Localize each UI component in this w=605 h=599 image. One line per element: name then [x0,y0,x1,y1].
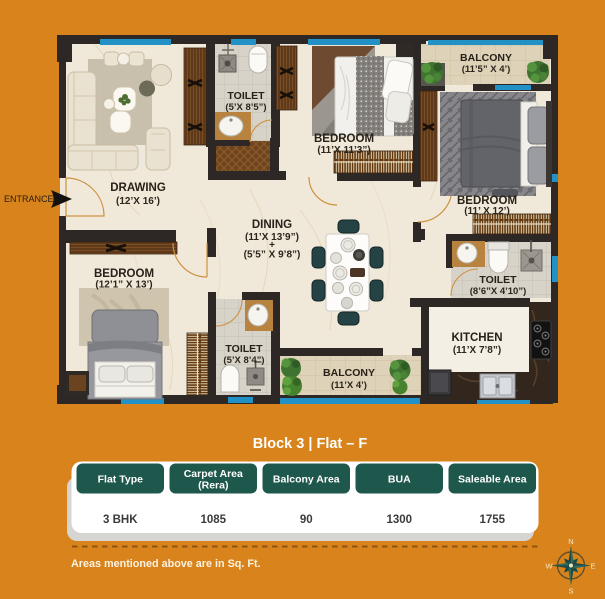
svg-text:(Rera): (Rera) [198,480,228,492]
svg-text:(5’X 8’5”): (5’X 8’5”) [225,102,266,113]
svg-text:ENTRANCE: ENTRANCE [4,194,54,204]
svg-text:Balcony Area: Balcony Area [273,474,340,486]
svg-text:Saleable Area: Saleable Area [458,474,527,486]
svg-text:S: S [568,587,573,596]
svg-text:(11’5” X 4’): (11’5” X 4’) [462,64,511,75]
svg-text:(5’5” X 9’8”): (5’5” X 9’8”) [244,250,301,261]
svg-text:(11’X 4’): (11’X 4’) [331,380,367,391]
svg-text:Flat Type: Flat Type [98,474,143,486]
svg-text:TOILET: TOILET [479,274,517,286]
svg-text:Carpet Area: Carpet Area [184,468,243,480]
svg-text:E: E [590,562,595,571]
svg-text:BEDROOM: BEDROOM [94,268,154,280]
svg-text:BALCONY: BALCONY [323,367,375,379]
svg-text:W: W [545,562,553,571]
svg-text:1755: 1755 [480,514,506,526]
svg-text:BEDROOM: BEDROOM [314,133,374,145]
svg-text:Areas mentioned above are in S: Areas mentioned above are in Sq. Ft. [71,558,261,570]
svg-text:TOILET: TOILET [225,343,263,355]
svg-text:KITCHEN: KITCHEN [451,332,502,344]
svg-text:TOILET: TOILET [227,90,265,102]
svg-text:3 BHK: 3 BHK [103,514,138,526]
svg-text:(8’6”X 4’10”): (8’6”X 4’10”) [470,286,527,297]
svg-text:DRAWING: DRAWING [110,182,166,194]
svg-text:(5’X 8’4”): (5’X 8’4”) [223,355,264,366]
svg-text:(11’ X 12’): (11’ X 12’) [464,206,510,217]
svg-text:BALCONY: BALCONY [460,52,512,64]
svg-text:(11’X 7’8”): (11’X 7’8”) [453,345,501,356]
svg-text:90: 90 [300,514,313,526]
svg-text:DINING: DINING [252,219,292,231]
svg-text:(12’1” X 13’): (12’1” X 13’) [95,280,152,291]
svg-text:(12’X 16’): (12’X 16’) [116,196,160,207]
svg-text:Block 3 | Flat – F: Block 3 | Flat – F [253,436,368,452]
svg-text:1300: 1300 [387,514,413,526]
svg-text:1085: 1085 [201,514,227,526]
svg-text:(11’X 11’3”): (11’X 11’3”) [317,145,370,156]
svg-text:BUA: BUA [388,474,411,486]
svg-text:N: N [568,537,573,546]
